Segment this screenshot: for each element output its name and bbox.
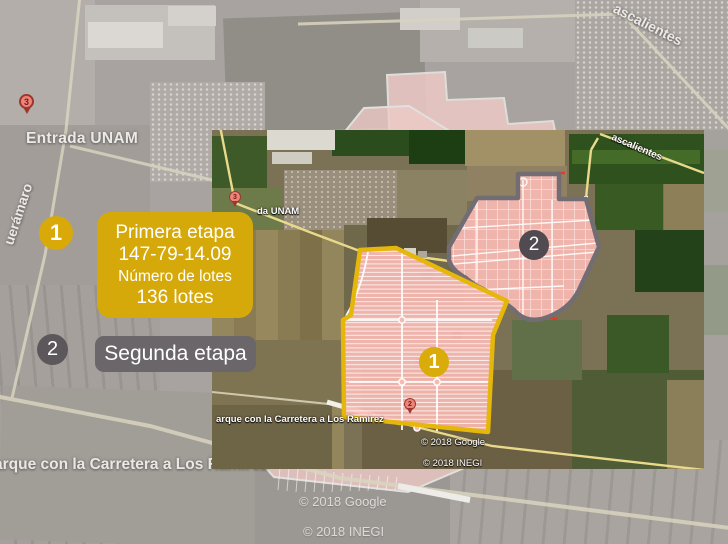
legend-badge-2: 2 [37, 334, 68, 365]
legend-primera-measure: 147-79-14.09 [97, 244, 253, 266]
legend-primera-lots-value: 136 lotes [97, 287, 253, 309]
slide-canvas: 3 Entrada UNAM uerámaro ascalientes arqu… [0, 0, 728, 544]
legend-primera-etapa-box: Primera etapa 147-79-14.09 Número de lot… [97, 212, 253, 318]
bg-place-label-entrada-unam: Entrada UNAM [26, 130, 138, 148]
inset-map: 3 da UNAM ascalientes arque con la Carre… [212, 130, 704, 469]
inset-pin3-tail [232, 201, 238, 210]
bg-copyright-inegi: © 2018 INEGI [303, 524, 384, 539]
legend-segunda-etapa-box: Segunda etapa [95, 336, 256, 372]
inset-pin3-number: 3 [233, 194, 237, 201]
inset-road-label-carretera-ramirez: arque con la Carretera a Los Ramírez [216, 414, 384, 425]
inset-pin2-number: 2 [408, 401, 412, 408]
legend-primera-title: Primera etapa [97, 222, 253, 244]
inset-map-pin-3: 3 [229, 191, 241, 210]
bg-pin3-number: 3 [24, 97, 29, 107]
inset-copyright-inegi: © 2018 INEGI [423, 458, 482, 469]
bg-map-pin-3: 3 [19, 94, 34, 118]
inset-place-label-da-unam: da UNAM [257, 206, 299, 217]
parcel-1-marker: 1 [419, 347, 449, 377]
bg-pin3-tail [23, 107, 31, 118]
inset-copyright-google: © 2018 Google [421, 437, 485, 448]
bg-copyright-google: © 2018 Google [299, 494, 387, 509]
inset-map-pin-2: 2 [404, 398, 416, 417]
legend-primera-lots-label: Número de lotes [97, 266, 253, 287]
legend-badge-1: 1 [39, 216, 73, 250]
legend-segunda-title: Segunda etapa [104, 342, 246, 365]
inset-pin2-tail [407, 408, 413, 417]
parcel-2-marker: 2 [519, 230, 549, 260]
